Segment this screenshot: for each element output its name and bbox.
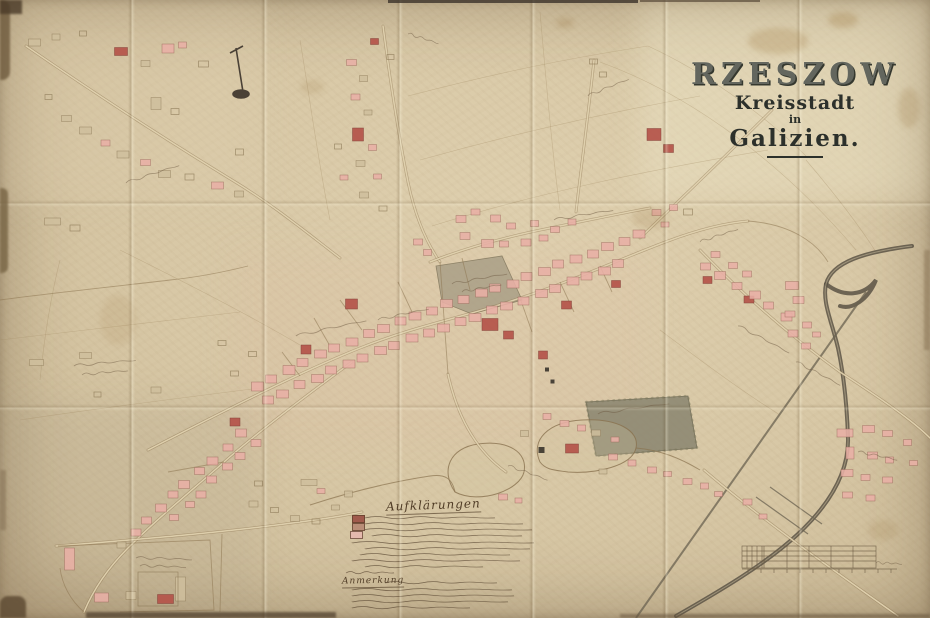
building <box>236 149 244 155</box>
building <box>332 505 340 510</box>
building <box>813 332 821 337</box>
building <box>683 479 692 485</box>
monastery-wall <box>58 540 214 612</box>
building <box>599 469 607 474</box>
building <box>95 593 109 602</box>
building <box>491 215 501 222</box>
building <box>207 457 218 465</box>
handwritten-label <box>125 164 179 184</box>
building <box>648 467 657 473</box>
building <box>539 268 551 276</box>
building <box>212 182 224 189</box>
building <box>602 243 614 251</box>
building <box>592 430 601 436</box>
building <box>360 76 368 82</box>
building <box>117 542 126 548</box>
building <box>65 548 75 570</box>
building <box>785 311 795 317</box>
building <box>883 477 893 483</box>
legend-text-line <box>352 542 534 544</box>
building <box>803 322 812 328</box>
building <box>179 481 190 489</box>
building <box>609 454 618 460</box>
legend-text-line <box>365 517 495 519</box>
building <box>389 342 400 350</box>
building <box>786 282 799 290</box>
building <box>294 381 305 389</box>
building <box>357 354 368 362</box>
building <box>346 338 358 346</box>
building <box>438 324 450 332</box>
legend-text-line <box>352 607 470 609</box>
building <box>732 283 742 290</box>
building <box>578 425 586 431</box>
legend-text-line <box>372 535 522 537</box>
building <box>312 375 324 383</box>
building <box>482 240 494 248</box>
building <box>599 267 611 275</box>
field-boundaries-layer <box>0 12 876 420</box>
building <box>271 508 279 513</box>
building <box>743 271 752 277</box>
building <box>456 216 466 223</box>
legend-swatch <box>350 531 363 539</box>
building <box>567 277 579 285</box>
building <box>45 218 61 225</box>
building <box>236 429 247 437</box>
building <box>476 289 488 297</box>
building <box>70 225 80 231</box>
building <box>841 470 853 477</box>
building <box>80 353 92 359</box>
building <box>223 463 233 470</box>
building <box>521 273 532 281</box>
buildings-layer <box>29 31 918 606</box>
legend-text-line <box>352 560 520 562</box>
building <box>207 476 217 483</box>
legend-swatch <box>352 523 365 531</box>
building <box>251 440 261 447</box>
building <box>30 360 44 366</box>
building <box>231 371 239 376</box>
building <box>501 302 513 310</box>
building <box>507 280 519 288</box>
building <box>861 475 870 481</box>
building <box>249 352 257 357</box>
building <box>866 495 875 501</box>
legend-text-line <box>365 523 523 525</box>
building <box>379 206 387 211</box>
building <box>647 129 661 141</box>
building <box>186 502 195 508</box>
building <box>126 592 136 600</box>
building <box>460 233 470 240</box>
building <box>521 431 529 437</box>
building <box>661 222 669 227</box>
building <box>345 491 353 497</box>
building <box>553 260 564 268</box>
legend-text-line <box>346 572 394 574</box>
embankment <box>770 487 822 524</box>
building <box>291 516 300 522</box>
pond-meander <box>448 443 524 497</box>
building <box>539 351 548 359</box>
building <box>471 209 480 215</box>
building <box>910 461 918 466</box>
building <box>566 444 579 453</box>
legend-text-line <box>385 582 497 584</box>
building <box>759 514 767 519</box>
building <box>378 325 390 333</box>
building <box>664 145 674 153</box>
building <box>863 426 875 433</box>
building <box>424 250 432 256</box>
building <box>94 392 101 397</box>
building <box>364 110 372 115</box>
building <box>62 116 72 122</box>
building <box>518 297 529 305</box>
wayside-cross-icon <box>230 46 249 98</box>
building <box>218 341 226 346</box>
handwritten-label <box>74 359 136 367</box>
building <box>277 390 289 398</box>
building <box>551 227 560 233</box>
pond-meander <box>537 420 636 473</box>
building <box>80 127 92 134</box>
building <box>356 161 365 167</box>
building <box>904 440 912 446</box>
building <box>469 314 481 322</box>
building <box>793 297 804 304</box>
building <box>868 452 878 459</box>
legend-swatch <box>352 515 365 523</box>
legend-text-line <box>352 595 514 597</box>
building <box>550 285 561 293</box>
handwritten-label <box>408 32 439 44</box>
building <box>633 230 645 238</box>
building <box>560 421 569 427</box>
building <box>156 504 167 512</box>
building <box>317 489 325 494</box>
building <box>611 437 619 442</box>
building <box>570 255 582 263</box>
building <box>414 239 423 245</box>
legend-text-line <box>360 554 510 556</box>
building <box>266 375 277 383</box>
building <box>340 175 348 180</box>
legend-text-line <box>365 548 530 550</box>
map-sheet: RZESZOW Kreisstadt in Galizien. Aufkläru… <box>0 0 930 618</box>
building <box>301 345 311 354</box>
legend-text-line <box>352 601 508 603</box>
building <box>441 300 453 308</box>
building <box>715 272 726 280</box>
building <box>837 429 853 437</box>
building <box>369 145 377 151</box>
building <box>843 492 853 498</box>
handwritten-label <box>738 325 790 354</box>
building <box>612 281 621 288</box>
building <box>351 94 360 100</box>
building <box>628 460 636 466</box>
building <box>80 31 87 36</box>
building <box>371 39 379 45</box>
monastery-complex <box>58 540 214 612</box>
building <box>255 481 263 486</box>
building <box>543 414 551 420</box>
building <box>539 447 545 453</box>
building <box>458 296 469 304</box>
building <box>788 330 798 337</box>
building <box>141 160 151 166</box>
building <box>507 223 516 229</box>
building <box>343 360 355 368</box>
legend-text-lines <box>346 517 534 609</box>
building <box>230 418 240 426</box>
building <box>346 299 358 309</box>
building <box>347 60 357 66</box>
building <box>151 387 161 393</box>
building <box>297 359 308 367</box>
building <box>223 444 233 451</box>
building <box>619 238 630 246</box>
building <box>406 334 418 342</box>
building <box>364 330 375 338</box>
handwritten-label <box>140 564 186 568</box>
building <box>664 472 672 477</box>
building <box>562 301 572 309</box>
building <box>170 515 179 521</box>
building <box>195 468 205 475</box>
building <box>711 252 720 258</box>
building <box>515 498 522 503</box>
building <box>117 151 129 158</box>
building <box>374 174 382 179</box>
building <box>249 501 258 507</box>
building <box>883 431 893 437</box>
building <box>196 491 206 498</box>
building <box>171 109 179 115</box>
building <box>487 306 498 314</box>
building <box>764 302 774 309</box>
building <box>158 595 174 604</box>
building <box>142 517 152 524</box>
building <box>545 368 549 372</box>
handwritten-label <box>82 369 128 375</box>
building <box>482 319 498 331</box>
building <box>329 344 340 352</box>
handwritten-label <box>587 78 629 97</box>
building <box>29 39 41 46</box>
building <box>263 396 274 404</box>
river-bend <box>826 280 876 307</box>
building <box>504 331 514 339</box>
building <box>455 318 466 326</box>
building <box>353 128 364 141</box>
building <box>283 366 295 375</box>
handwritten-label <box>136 556 192 560</box>
building <box>652 210 661 216</box>
building <box>846 447 854 459</box>
building <box>45 95 52 100</box>
building <box>326 366 337 374</box>
building <box>568 219 576 225</box>
building <box>670 205 678 211</box>
building <box>131 529 141 536</box>
legend-text-line <box>352 589 512 591</box>
building <box>199 61 209 67</box>
building <box>750 291 761 299</box>
building <box>581 272 592 280</box>
building <box>335 144 342 149</box>
building <box>521 239 531 246</box>
building <box>162 44 174 53</box>
building <box>802 343 811 349</box>
building <box>179 42 187 48</box>
building <box>499 494 508 500</box>
building <box>424 329 435 337</box>
building <box>531 221 539 227</box>
building <box>235 453 245 460</box>
map-drawing <box>0 0 930 618</box>
building <box>176 577 186 601</box>
building <box>703 277 712 284</box>
building <box>151 98 161 110</box>
building <box>375 347 387 355</box>
building <box>701 263 711 270</box>
stream <box>310 476 455 505</box>
building <box>613 260 624 268</box>
building <box>729 263 738 269</box>
building <box>684 209 693 215</box>
building <box>141 61 150 67</box>
building <box>168 491 178 498</box>
building <box>101 140 110 146</box>
building <box>252 382 264 391</box>
building <box>315 350 327 358</box>
handwritten-label <box>554 209 614 221</box>
building <box>743 499 752 505</box>
building <box>427 307 438 315</box>
building <box>395 317 406 325</box>
legend-text-line <box>365 566 483 568</box>
building <box>235 191 244 197</box>
building <box>360 192 369 198</box>
building <box>52 34 60 40</box>
building <box>701 483 709 489</box>
building <box>539 235 548 241</box>
building <box>588 250 599 258</box>
building <box>536 290 548 298</box>
building <box>115 48 128 56</box>
building <box>715 492 723 497</box>
building <box>301 480 317 486</box>
legend-text-line <box>362 529 532 531</box>
building <box>185 174 194 180</box>
building <box>500 241 509 247</box>
building <box>600 72 607 77</box>
handwritten-label <box>876 561 902 565</box>
building <box>551 380 555 384</box>
